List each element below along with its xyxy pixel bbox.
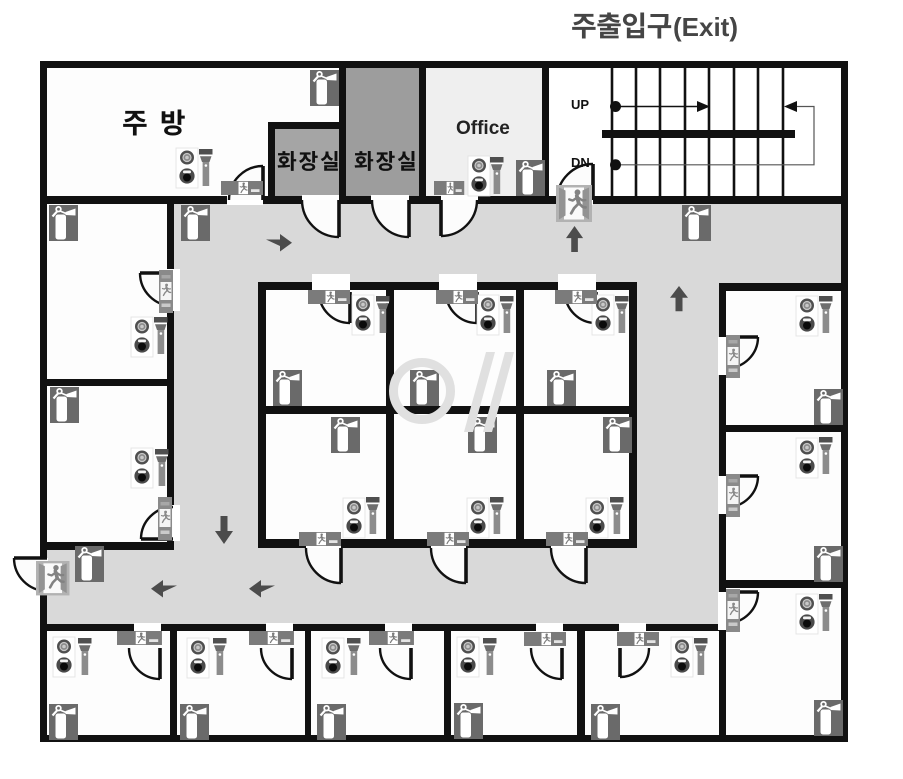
svg-text:Office: Office: [456, 118, 510, 139]
svg-text:UP: UP: [571, 97, 589, 112]
svg-text:(Exit): (Exit): [673, 12, 738, 42]
svg-text:DN: DN: [571, 155, 590, 170]
